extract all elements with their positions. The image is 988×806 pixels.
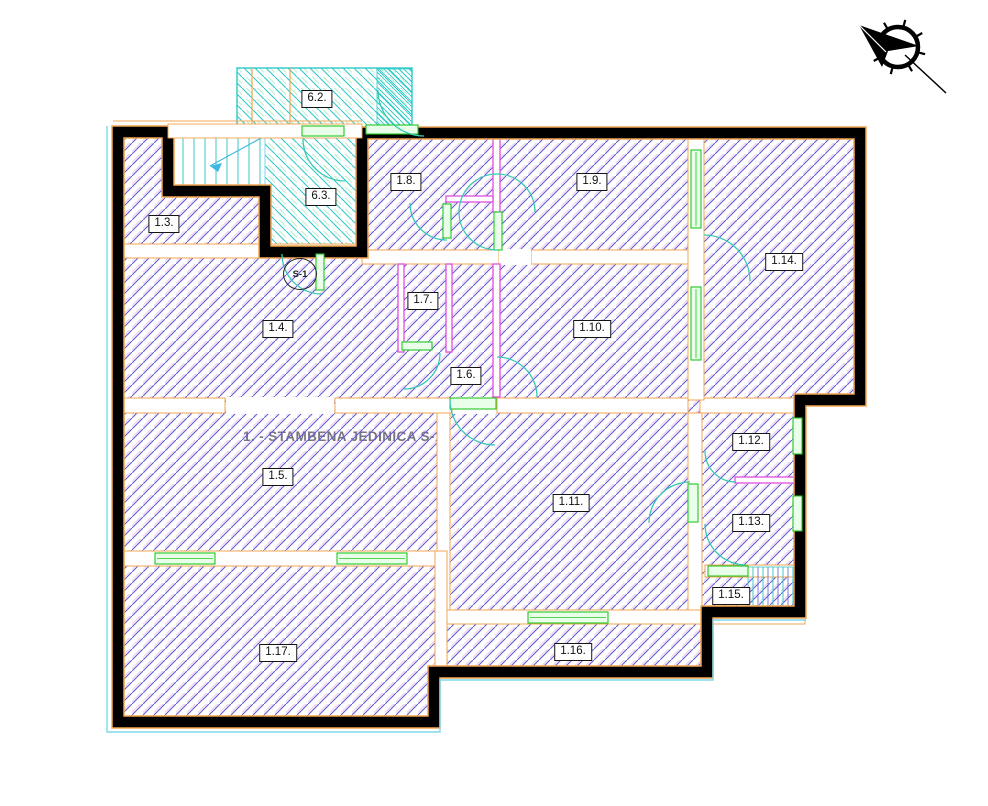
north-arrow-icon	[859, 20, 946, 93]
unit-badge: S-1	[283, 258, 317, 290]
floor-plan: 1. - STAMBENA JEDINICA S-1	[0, 0, 988, 806]
area-6-2	[237, 68, 412, 127]
staircase	[172, 133, 265, 191]
unit-interior-hatch	[118, 132, 860, 722]
floor-plan-drawing	[0, 0, 988, 806]
